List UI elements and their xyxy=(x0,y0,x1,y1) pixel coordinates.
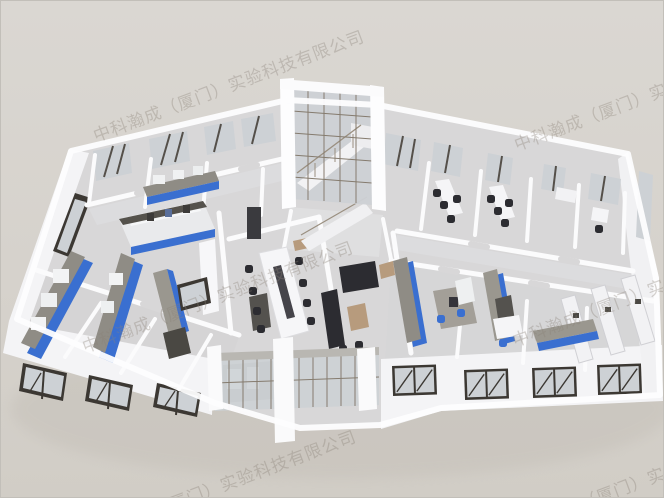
office-chair xyxy=(440,201,448,209)
window xyxy=(597,363,642,395)
office-chair xyxy=(501,219,509,227)
door-opening xyxy=(471,244,487,247)
office-chair xyxy=(487,195,495,203)
conference-chair xyxy=(253,307,261,315)
office-chair xyxy=(447,215,455,223)
monitor xyxy=(449,297,458,307)
window xyxy=(241,113,276,147)
lab-chair-blue xyxy=(437,315,445,323)
equipment-box xyxy=(153,175,165,184)
conference-chair xyxy=(245,265,253,273)
dark-door xyxy=(247,207,261,239)
door-opening xyxy=(531,283,547,286)
wall xyxy=(261,169,263,215)
conference-chair xyxy=(303,299,311,307)
window xyxy=(464,368,509,400)
equipment-box xyxy=(193,166,203,175)
lab-chair-blue xyxy=(499,339,507,347)
office-chair xyxy=(494,207,502,215)
lab-chair-blue xyxy=(457,309,465,317)
window xyxy=(485,153,513,185)
wall xyxy=(623,193,625,253)
window xyxy=(431,142,463,177)
door-opening xyxy=(241,165,257,169)
window xyxy=(204,121,236,155)
office-chair xyxy=(505,199,513,207)
equipment-box xyxy=(101,301,114,313)
office-chair xyxy=(453,195,461,203)
equipment-box xyxy=(41,293,57,307)
window xyxy=(532,366,577,398)
instrument xyxy=(165,209,172,217)
watermark-text: 中科瀚成（厦门）实验科技有限公司 xyxy=(512,36,664,156)
entrance-pillar xyxy=(357,347,377,411)
window xyxy=(392,364,437,396)
equipment-box xyxy=(109,273,123,285)
render-canvas: 中科瀚成（厦门）实验科技有限公司 中科瀚成（厦门）实验科技有限公司 中科瀚成（厦… xyxy=(0,0,664,498)
instrument xyxy=(147,213,154,221)
door-opening xyxy=(441,269,457,272)
stair-landing xyxy=(351,123,373,149)
floorplan-render: 中科瀚成（厦门）实验科技有限公司 中科瀚成（厦门）实验科技有限公司 中科瀚成（厦… xyxy=(1,1,664,498)
office-chair xyxy=(433,189,441,197)
office-chair xyxy=(595,225,603,233)
door-opening xyxy=(561,259,577,262)
conference-chair xyxy=(299,279,307,287)
conference-chair xyxy=(307,317,315,325)
equipment-box xyxy=(173,170,184,179)
conference-chair xyxy=(257,325,265,333)
instrument xyxy=(183,205,190,213)
equipment-box xyxy=(53,269,69,283)
